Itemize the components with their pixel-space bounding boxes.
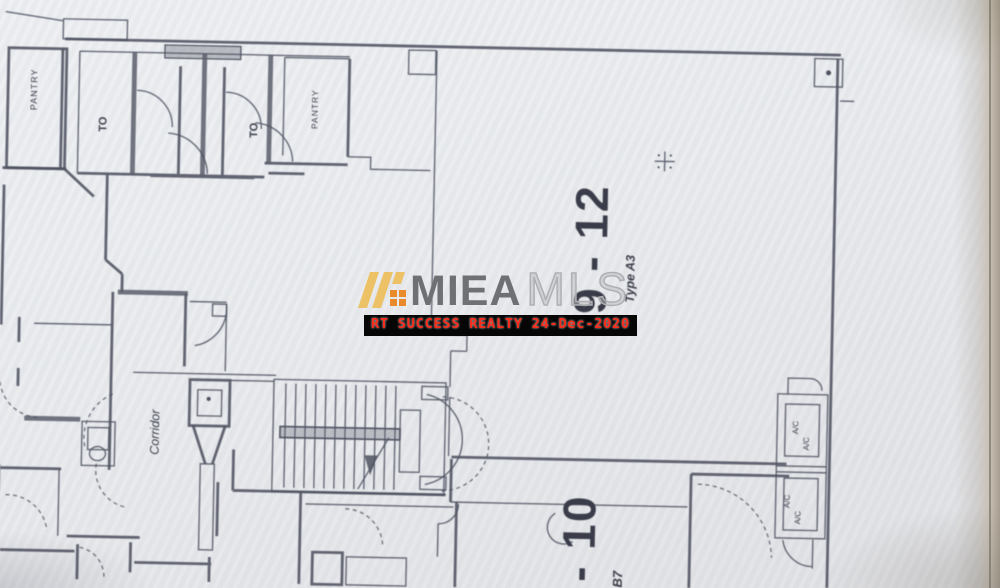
cross-marker	[655, 151, 675, 171]
ac-label: A/C	[782, 494, 791, 508]
bottom-right-walls	[689, 474, 789, 588]
pantry-left-label: PANTRY	[29, 68, 40, 110]
brand-text-mls: MLS	[527, 268, 631, 312]
ac-label: A/C	[793, 511, 802, 525]
pantry-room-left	[0, 48, 97, 327]
inner-room-walls	[103, 175, 229, 372]
ac-label: A/C	[802, 437, 811, 451]
left-rooms	[0, 290, 222, 583]
toilet-right-label: TO	[248, 122, 260, 138]
pantry-top-label: PANTRY	[309, 89, 320, 129]
corridor-label: Corridor	[147, 409, 162, 455]
staircase	[272, 379, 490, 495]
mls-watermark: MIEA MLS RT SUCCESS REALTY 24-Dec-2020	[354, 256, 637, 336]
miea-logo-icon	[354, 264, 408, 312]
ac-ledge: A/C A/C A/C A/C	[774, 378, 828, 569]
brand-text-miea: MIEA	[410, 271, 522, 312]
lift-shaft	[186, 380, 230, 551]
unit-bottom-type: B7	[610, 570, 625, 588]
ac-label: A/C	[791, 421, 800, 435]
bottom-rooms	[299, 493, 574, 588]
unit-bottom-number: - 10	[552, 494, 606, 582]
toilet-left-label: TO	[97, 116, 109, 132]
realty-banner: RT SUCCESS REALTY 24-Dec-2020	[364, 315, 637, 336]
miea-mls-logo: MIEA MLS	[354, 256, 637, 312]
toilet-cluster	[77, 51, 432, 181]
corridor-walls	[131, 372, 690, 507]
